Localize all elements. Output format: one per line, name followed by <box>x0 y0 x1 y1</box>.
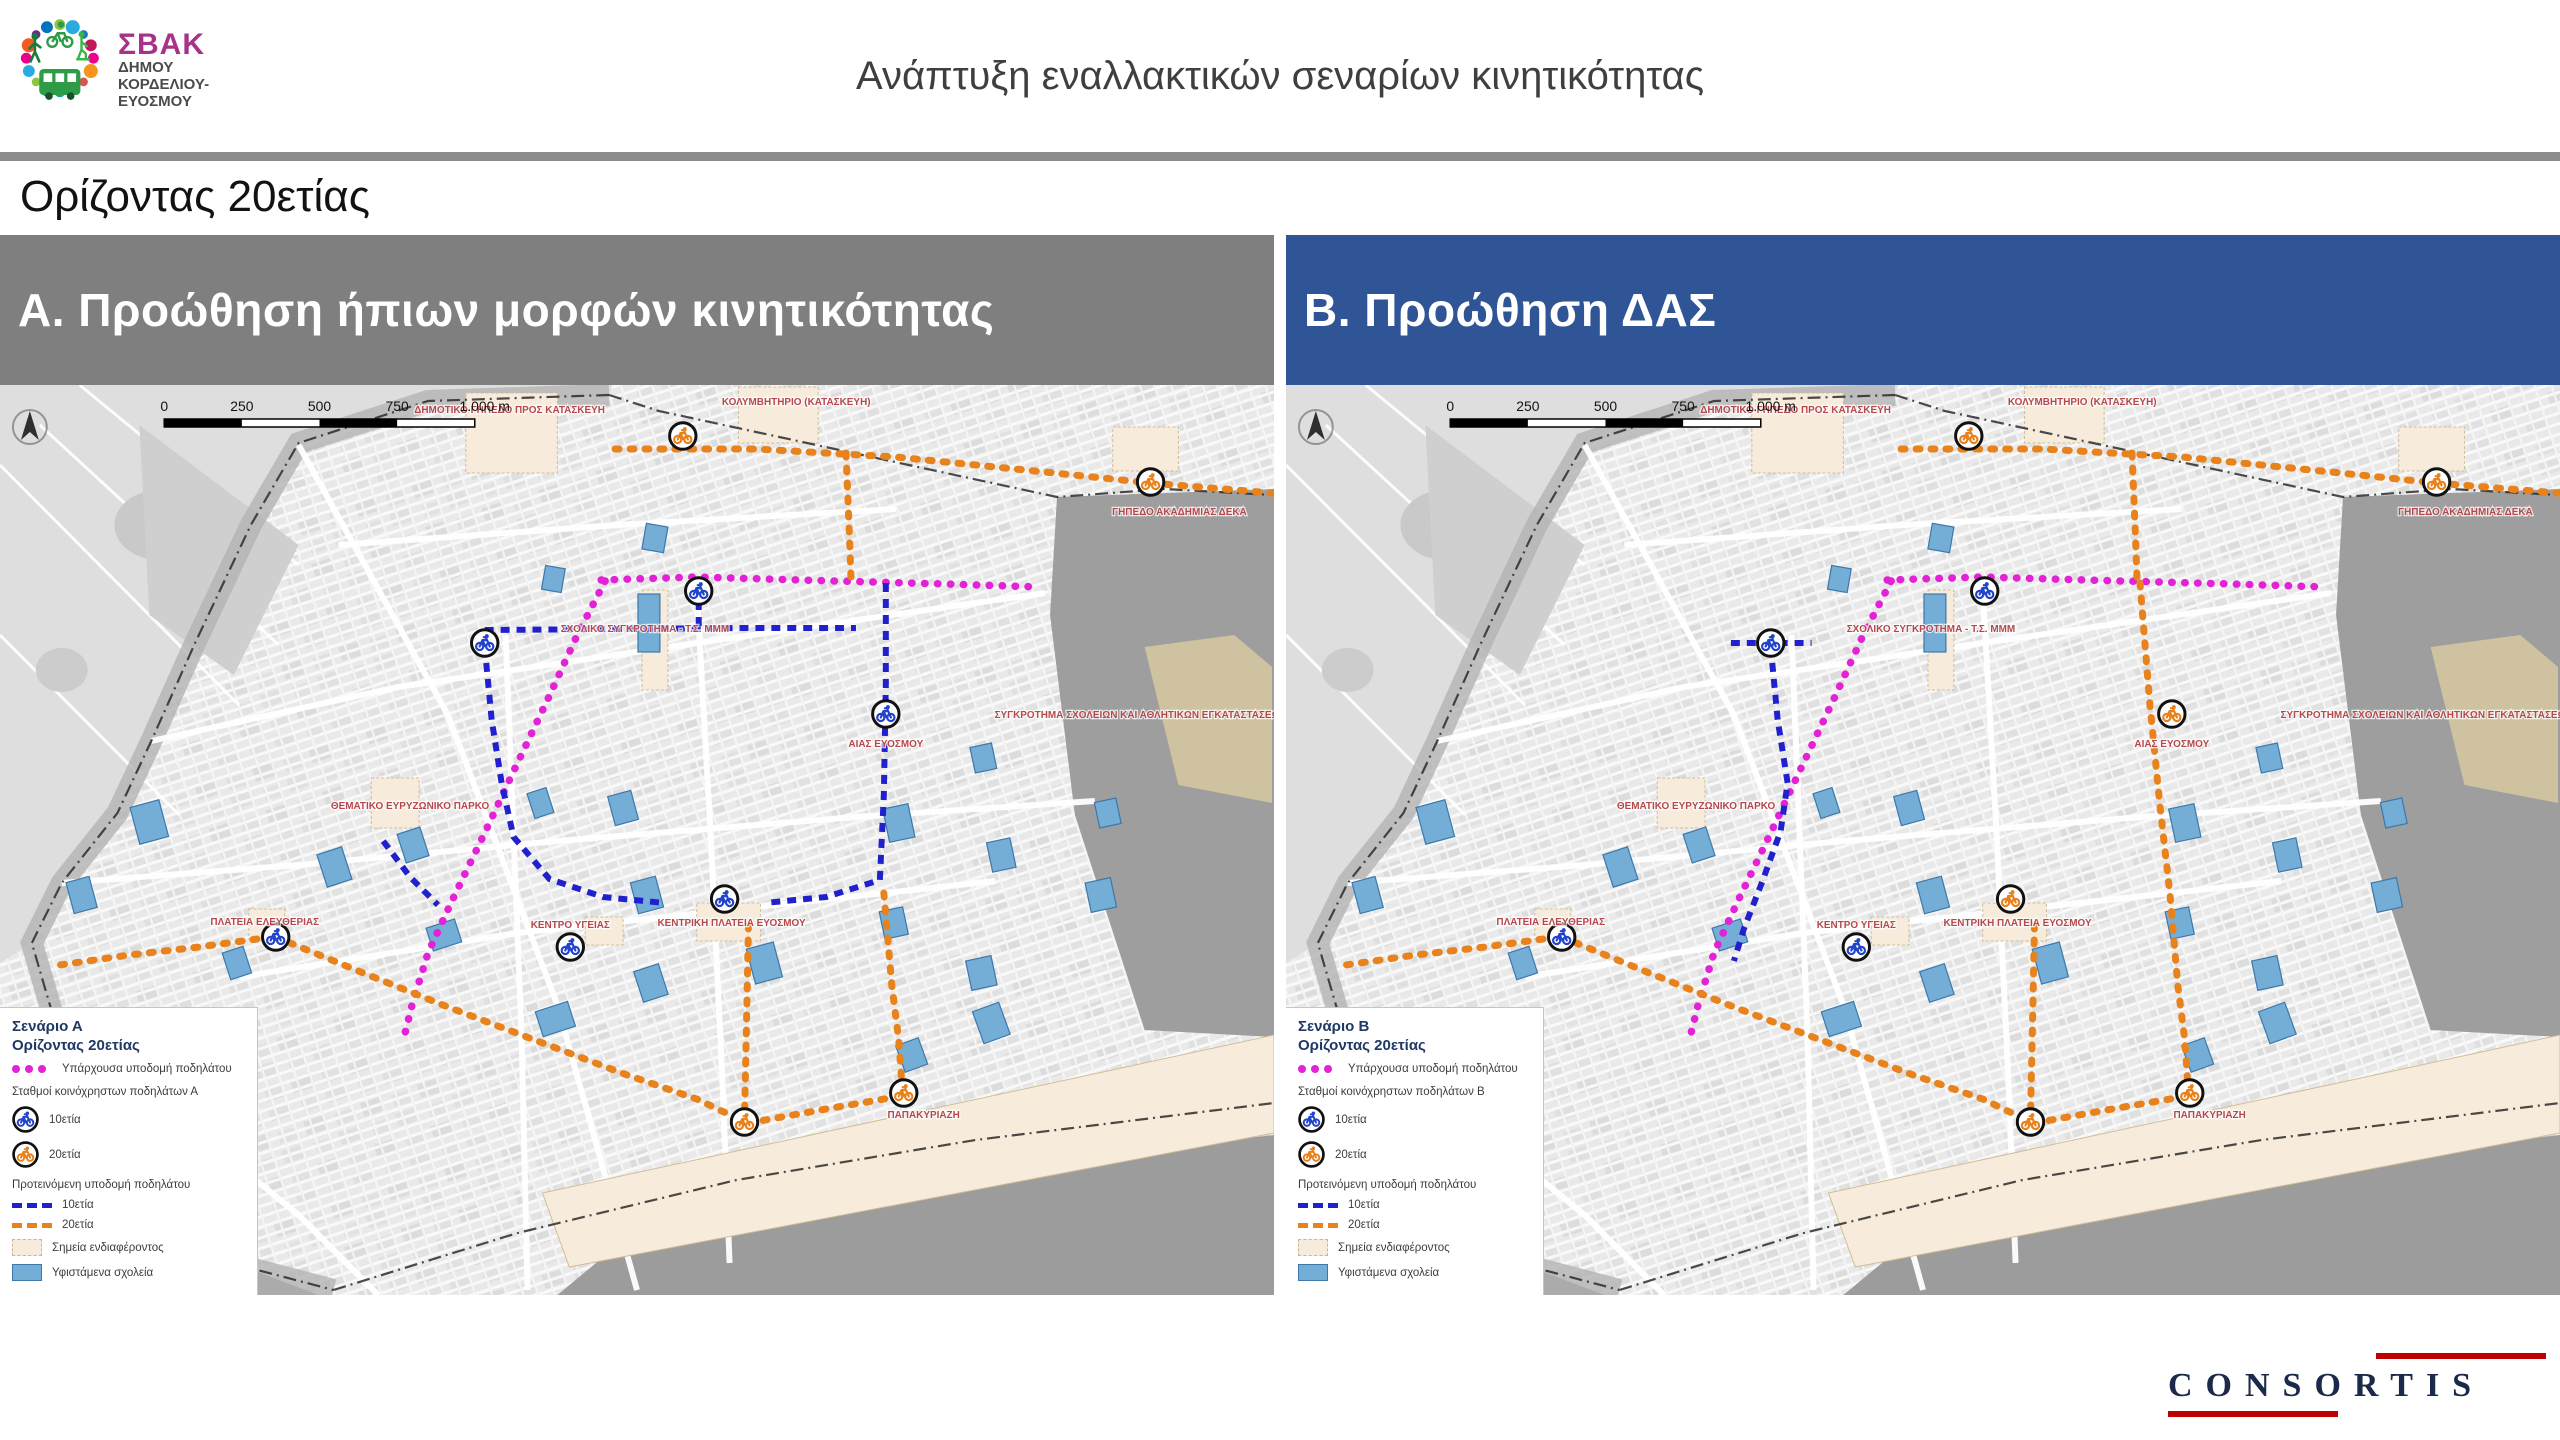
proposed-10-swatch <box>12 1203 52 1208</box>
svg-text:ΣΥΓΚΡΟΤΗΜΑ ΣΧΟΛΕΙΩΝ ΚΑΙ ΑΘΛΗΤΙ: ΣΥΓΚΡΟΤΗΜΑ ΣΧΟΛΕΙΩΝ ΚΑΙ ΑΘΛΗΤΙΚΩΝ ΕΓΚΑΤΑ… <box>2281 710 2560 721</box>
header-divider <box>0 152 2560 161</box>
legend-a-title: Σενάριο Α <box>12 1018 247 1037</box>
slide: ΣΒΑΚ ΔΗΜΟΥ ΚΟΡΔΕΛΙΟΥ- ΕΥΟΣΜΟΥ Ανάπτυξη ε… <box>0 0 2560 1440</box>
logo-line-1: ΔΗΜΟΥ <box>118 60 209 77</box>
slide-footer: CONSORTIS <box>0 1295 2560 1435</box>
svg-text:250: 250 <box>1516 398 1539 414</box>
bike-station-10-icon <box>1298 1106 1325 1133</box>
svak-logo-icon <box>16 4 108 108</box>
bike-station-20-icon <box>12 1141 39 1168</box>
proposed-20-swatch <box>12 1223 52 1228</box>
svg-text:ΓΗΠΕΔΟ ΑΚΑΔΗΜΙΑΣ ΔΕΚΑ: ΓΗΠΕΔΟ ΑΚΑΔΗΜΙΑΣ ΔΕΚΑ <box>2398 507 2533 518</box>
svg-text:ΓΗΠΕΔΟ ΑΚΑΔΗΜΙΑΣ ΔΕΚΑ: ΓΗΠΕΔΟ ΑΚΑΔΗΜΙΑΣ ΔΕΚΑ <box>1112 507 1247 518</box>
bike-station-20-icon <box>1298 1141 1325 1168</box>
svg-text:ΣΧΟΛΙΚΟ ΣΥΓΚΡΟΤΗΜΑ - Τ.Σ. ΜΜΜ: ΣΧΟΛΙΚΟ ΣΥΓΚΡΟΤΗΜΑ - Τ.Σ. ΜΜΜ <box>1847 624 2015 635</box>
legend-proposed-header: Προτεινόμενη υποδομή ποδηλάτου <box>12 1179 247 1191</box>
poi-swatch <box>12 1239 42 1256</box>
panel-scenario-b: Β. Προώθηση ΔΑΣ ΔΗΜΟΤΙΚΟ ΓΗΠΕΔΟ ΠΡΟΣ ΚΑΤ… <box>1286 235 2560 1295</box>
schools-swatch <box>12 1264 42 1281</box>
poi-swatch <box>1298 1239 1328 1256</box>
legend-a: Σενάριο Α Ορίζοντας 20ετίας Υπάρχουσα υπ… <box>0 1007 258 1296</box>
legend-b-title: Σενάριο Β <box>1298 1018 1533 1037</box>
svg-text:ΚΕΝΤΡΙΚΗ ΠΛΑΤΕΙΑ ΕΥΟΣΜΟΥ: ΚΕΝΤΡΙΚΗ ΠΛΑΤΕΙΑ ΕΥΟΣΜΟΥ <box>1943 918 2092 929</box>
legend-row-schools: Υφιστάμενα σχολεία <box>12 1264 247 1281</box>
legend-proposed-header: Προτεινόμενη υποδομή ποδηλάτου <box>1298 1179 1533 1191</box>
logo-line-2: ΚΟΡΔΕΛΙΟΥ- <box>118 77 209 94</box>
panel-a-header: Α. Προώθηση ήπιων μορφών κινητικότητας <box>0 235 1274 385</box>
legend-a-subtitle: Ορίζοντας 20ετίας <box>12 1037 247 1056</box>
proposed-10-swatch <box>1298 1203 1338 1208</box>
legend-row-p20: 20ετία <box>12 1219 247 1231</box>
svg-text:ΑΙΑΣ ΕΥΟΣΜΟΥ: ΑΙΑΣ ΕΥΟΣΜΟΥ <box>848 739 923 750</box>
section-subtitle: Ορίζοντας 20ετίας <box>20 173 2560 221</box>
legend-stations-header: Σταθμοί κοινόχρηστων ποδηλάτων Β <box>1298 1086 1533 1098</box>
svg-text:0: 0 <box>1446 398 1454 414</box>
legend-row-poi: Σημεία ενδιαφέροντος <box>1298 1239 1533 1256</box>
svg-text:ΚΕΝΤΡΙΚΗ ΠΛΑΤΕΙΑ ΕΥΟΣΜΟΥ: ΚΕΝΤΡΙΚΗ ΠΛΑΤΕΙΑ ΕΥΟΣΜΟΥ <box>657 918 806 929</box>
slide-header: ΣΒΑΚ ΔΗΜΟΥ ΚΟΡΔΕΛΙΟΥ- ΕΥΟΣΜΟΥ Ανάπτυξη ε… <box>0 0 2560 152</box>
svg-text:750: 750 <box>1672 398 1695 414</box>
logo-abbr: ΣΒΑΚ <box>118 30 209 60</box>
svg-text:ΚΟΛΥΜΒΗΤΗΡΙΟ (ΚΑΤΑΣΚΕΥΗ): ΚΟΛΥΜΒΗΤΗΡΙΟ (ΚΑΤΑΣΚΕΥΗ) <box>722 397 871 408</box>
legend-row-existing: Υπάρχουσα υποδομή ποδηλάτου <box>1298 1063 1533 1075</box>
svg-text:ΘΕΜΑΤΙΚΟ ΕΥΡΥΖΩΝΙΚΟ ΠΑΡΚΟ: ΘΕΜΑΤΙΚΟ ΕΥΡΥΖΩΝΙΚΟ ΠΑΡΚΟ <box>331 801 490 812</box>
legend-row-p10: 10ετία <box>12 1199 247 1211</box>
map-a: ΔΗΜΟΤΙΚΟ ΓΗΠΕΔΟ ΠΡΟΣ ΚΑΤΑΣΚΕΥΗΚΟΛΥΜΒΗΤΗΡ… <box>0 385 1274 1295</box>
legend-row-existing: Υπάρχουσα υποδομή ποδηλάτου <box>12 1063 247 1075</box>
proposed-20-swatch <box>1298 1223 1338 1228</box>
existing-route-swatch <box>1298 1065 1338 1073</box>
legend-row-station20: 20ετία <box>12 1141 247 1168</box>
svg-text:ΣΧΟΛΙΚΟ ΣΥΓΚΡΟΤΗΜΑ - Τ.Σ. ΜΜΜ: ΣΧΟΛΙΚΟ ΣΥΓΚΡΟΤΗΜΑ - Τ.Σ. ΜΜΜ <box>561 624 729 635</box>
bike-station-10-icon <box>12 1106 39 1133</box>
svg-text:250: 250 <box>230 398 253 414</box>
svg-text:ΠΛΑΤΕΙΑ ΕΛΕΥΘΕΡΙΑΣ: ΠΛΑΤΕΙΑ ΕΛΕΥΘΕΡΙΑΣ <box>1496 917 1605 928</box>
svg-text:750: 750 <box>386 398 409 414</box>
svg-text:500: 500 <box>1594 398 1617 414</box>
svg-text:ΠΑΠΑΚΥΡΙΑΖΗ: ΠΑΠΑΚΥΡΙΑΖΗ <box>887 1110 959 1121</box>
svg-text:ΠΛΑΤΕΙΑ ΕΛΕΥΘΕΡΙΑΣ: ΠΛΑΤΕΙΑ ΕΛΕΥΘΕΡΙΑΣ <box>210 917 319 928</box>
consortis-brand: CONSORTIS <box>2168 1367 2546 1405</box>
page-title: Ανάπτυξη εναλλακτικών σεναρίων κινητικότ… <box>0 0 2560 152</box>
scenario-panels: Α. Προώθηση ήπιων μορφών κινητικότητας Δ… <box>0 235 2560 1295</box>
panel-b-title: Β. Προώθηση ΔΑΣ <box>1304 283 1716 337</box>
legend-row-station20: 20ετία <box>1298 1141 1533 1168</box>
svg-text:500: 500 <box>308 398 331 414</box>
panel-a-title: Α. Προώθηση ήπιων μορφών κινητικότητας <box>18 283 994 337</box>
svg-text:ΚΕΝΤΡΟ ΥΓΕΙΑΣ: ΚΕΝΤΡΟ ΥΓΕΙΑΣ <box>531 920 610 931</box>
legend-row-schools: Υφιστάμενα σχολεία <box>1298 1264 1533 1281</box>
svg-text:ΚΕΝΤΡΟ ΥΓΕΙΑΣ: ΚΕΝΤΡΟ ΥΓΕΙΑΣ <box>1817 920 1896 931</box>
legend-row-station10: 10ετία <box>1298 1106 1533 1133</box>
svg-text:1.000 m: 1.000 m <box>460 398 510 414</box>
svak-logo-text: ΣΒΑΚ ΔΗΜΟΥ ΚΟΡΔΕΛΙΟΥ- ΕΥΟΣΜΟΥ <box>118 4 209 110</box>
logo-line-3: ΕΥΟΣΜΟΥ <box>118 94 209 111</box>
svg-text:ΘΕΜΑΤΙΚΟ ΕΥΡΥΖΩΝΙΚΟ ΠΑΡΚΟ: ΘΕΜΑΤΙΚΟ ΕΥΡΥΖΩΝΙΚΟ ΠΑΡΚΟ <box>1617 801 1776 812</box>
schools-swatch <box>1298 1264 1328 1281</box>
svak-logo: ΣΒΑΚ ΔΗΜΟΥ ΚΟΡΔΕΛΙΟΥ- ΕΥΟΣΜΟΥ <box>16 4 209 110</box>
consortis-bar-top <box>2376 1353 2546 1359</box>
legend-row-station10: 10ετία <box>12 1106 247 1133</box>
svg-text:1.000 m: 1.000 m <box>1746 398 1796 414</box>
legend-b: Σενάριο Β Ορίζοντας 20ετίας Υπάρχουσα υπ… <box>1286 1007 1544 1296</box>
map-b: ΔΗΜΟΤΙΚΟ ΓΗΠΕΔΟ ΠΡΟΣ ΚΑΤΑΣΚΕΥΗΚΟΛΥΜΒΗΤΗΡ… <box>1286 385 2560 1295</box>
svg-text:0: 0 <box>160 398 168 414</box>
existing-route-swatch <box>12 1065 52 1073</box>
legend-b-subtitle: Ορίζοντας 20ετίας <box>1298 1037 1533 1056</box>
panel-scenario-a: Α. Προώθηση ήπιων μορφών κινητικότητας Δ… <box>0 235 1274 1295</box>
svg-text:ΣΥΓΚΡΟΤΗΜΑ ΣΧΟΛΕΙΩΝ ΚΑΙ ΑΘΛΗΤΙ: ΣΥΓΚΡΟΤΗΜΑ ΣΧΟΛΕΙΩΝ ΚΑΙ ΑΘΛΗΤΙΚΩΝ ΕΓΚΑΤΑ… <box>995 710 1274 721</box>
legend-stations-header: Σταθμοί κοινόχρηστων ποδηλάτων Α <box>12 1086 247 1098</box>
svg-text:ΚΟΛΥΜΒΗΤΗΡΙΟ (ΚΑΤΑΣΚΕΥΗ): ΚΟΛΥΜΒΗΤΗΡΙΟ (ΚΑΤΑΣΚΕΥΗ) <box>2008 397 2157 408</box>
svg-text:ΠΑΠΑΚΥΡΙΑΖΗ: ΠΑΠΑΚΥΡΙΑΖΗ <box>2173 1110 2245 1121</box>
svg-text:ΑΙΑΣ ΕΥΟΣΜΟΥ: ΑΙΑΣ ΕΥΟΣΜΟΥ <box>2134 739 2209 750</box>
consortis-bar-bottom <box>2168 1411 2338 1417</box>
legend-row-p10: 10ετία <box>1298 1199 1533 1211</box>
legend-row-p20: 20ετία <box>1298 1219 1533 1231</box>
consortis-logo: CONSORTIS <box>2168 1353 2546 1417</box>
legend-row-poi: Σημεία ενδιαφέροντος <box>12 1239 247 1256</box>
panel-b-header: Β. Προώθηση ΔΑΣ <box>1286 235 2560 385</box>
